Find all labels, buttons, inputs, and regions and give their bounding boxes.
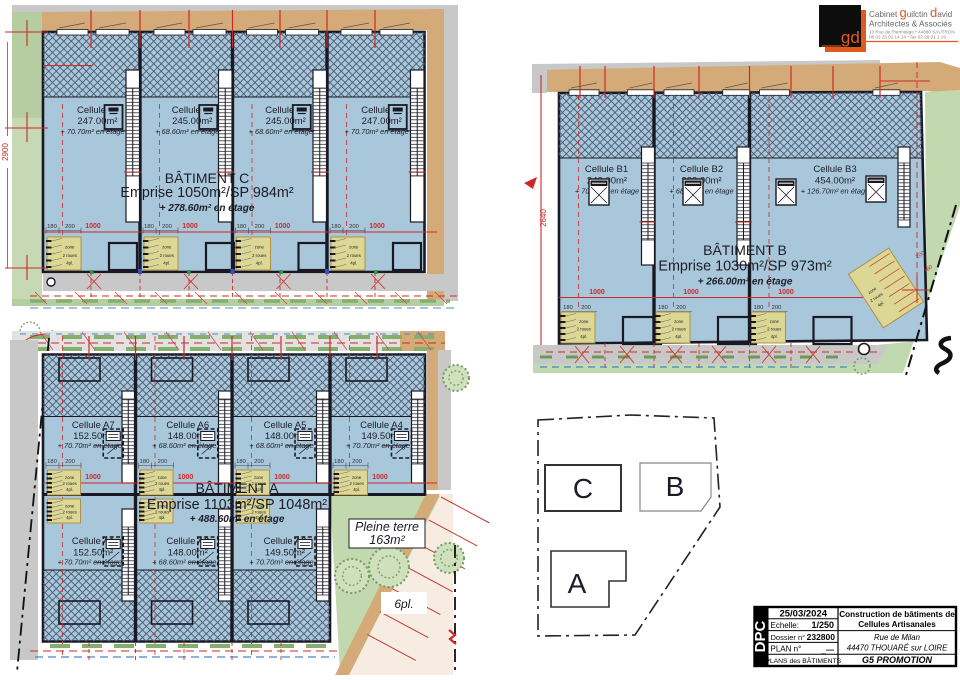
svg-text:zone: zone	[254, 475, 264, 480]
svg-text:4pl.: 4pl.	[350, 261, 357, 266]
svg-text:Rue de Milan: Rue de Milan	[874, 633, 920, 642]
svg-text:200: 200	[158, 459, 168, 465]
svg-text:25/03/2024: 25/03/2024	[779, 608, 827, 619]
svg-text:200: 200	[772, 305, 782, 311]
svg-text:2 roues: 2 roues	[767, 327, 781, 332]
svg-text:+ 70.70m² en étage: + 70.70m² en étage	[60, 127, 124, 136]
svg-text:2 roues: 2 roues	[63, 253, 77, 258]
svg-text:BÂTIMENT C: BÂTIMENT C	[165, 170, 250, 186]
svg-text:4pl.: 4pl.	[163, 261, 170, 266]
svg-text:1000: 1000	[182, 223, 198, 230]
svg-text:247.00m²: 247.00m²	[362, 116, 402, 127]
svg-text:Cellule B3: Cellule B3	[813, 164, 856, 175]
svg-text:44470 THOUARÉ sur LOIRE: 44470 THOUARÉ sur LOIRE	[847, 644, 948, 653]
svg-text:BÂTIMENT A: BÂTIMENT A	[196, 480, 280, 496]
svg-text:Emprise 1103m²/SP 1048m²: Emprise 1103m²/SP 1048m²	[147, 497, 327, 513]
svg-text:Dossier n°: Dossier n°	[771, 633, 806, 642]
svg-text:Cellule: Cellule	[77, 105, 106, 116]
svg-text:Cellule: Cellule	[361, 105, 390, 116]
svg-text:+ 126.70m² en étage: + 126.70m² en étage	[801, 187, 869, 196]
svg-text:Cellule A4: Cellule A4	[360, 420, 403, 431]
svg-text:200: 200	[162, 224, 172, 230]
svg-text:2 roues: 2 roues	[160, 253, 174, 258]
svg-text:Emprise 1050m²/SP 984m²: Emprise 1050m²/SP 984m²	[120, 185, 293, 201]
svg-text:zone: zone	[65, 503, 75, 508]
svg-text:180: 180	[144, 224, 154, 230]
svg-text:200: 200	[349, 224, 359, 230]
svg-text:1000: 1000	[85, 474, 101, 481]
svg-text:2900: 2900	[1, 143, 10, 161]
svg-text:200: 200	[352, 459, 362, 465]
svg-text:2 roues: 2 roues	[672, 327, 686, 332]
svg-text:180: 180	[237, 224, 247, 230]
svg-text:BÂTIMENT B: BÂTIMENT B	[703, 242, 787, 258]
svg-text:4pl.: 4pl.	[353, 487, 360, 492]
svg-text:180: 180	[331, 224, 341, 230]
svg-text:180: 180	[47, 459, 57, 465]
svg-text:2 roues: 2 roues	[577, 327, 591, 332]
svg-text:DPC: DPC	[752, 620, 769, 652]
svg-text:200: 200	[581, 305, 591, 311]
svg-text:+ 68.60m² en étage: + 68.60m² en étage	[249, 127, 313, 136]
svg-text:08 02 25 01 14 14 * fax 02 28: 08 02 25 01 14 14 * fax 02 28 01 1 19	[869, 35, 946, 40]
svg-text:180: 180	[334, 459, 344, 465]
svg-text:Emprise 1030m²/SP 973m²: Emprise 1030m²/SP 973m²	[658, 259, 831, 275]
svg-text:1000: 1000	[369, 223, 385, 230]
svg-text:zone: zone	[770, 319, 780, 324]
svg-text:1/250: 1/250	[811, 620, 834, 630]
svg-text:PLANS des BÂTIMENTS: PLANS des BÂTIMENTS	[765, 656, 841, 665]
svg-text:2 roues: 2 roues	[155, 481, 169, 486]
svg-text:2 roues: 2 roues	[347, 253, 361, 258]
svg-text:1000: 1000	[85, 223, 101, 230]
svg-text:zone: zone	[352, 475, 362, 480]
svg-text:200: 200	[255, 224, 265, 230]
svg-text:Construction de bâtiments de: Construction de bâtiments de	[839, 610, 955, 619]
svg-text:4pl.: 4pl.	[66, 515, 73, 520]
svg-text:__gd: __gd	[821, 28, 860, 47]
svg-text:Cellule A5: Cellule A5	[264, 420, 307, 431]
svg-text:1000: 1000	[683, 289, 699, 296]
svg-text:1000: 1000	[589, 289, 605, 296]
svg-text:180: 180	[236, 459, 246, 465]
svg-text:zone: zone	[349, 245, 359, 250]
svg-text:200: 200	[254, 459, 264, 465]
svg-text:Cellule B1: Cellule B1	[585, 164, 628, 175]
svg-text:4pl.: 4pl.	[675, 334, 682, 339]
svg-text:1000: 1000	[372, 474, 388, 481]
svg-text:200: 200	[65, 459, 75, 465]
svg-text:Cellule B2: Cellule B2	[680, 164, 723, 175]
svg-text:4pl.: 4pl.	[771, 334, 778, 339]
svg-text:245.00m²: 245.00m²	[172, 116, 212, 127]
svg-text:180: 180	[563, 305, 573, 311]
svg-text:Pleine terre: Pleine terre	[355, 520, 419, 534]
svg-text:1000: 1000	[178, 474, 194, 481]
svg-text:Architectes & Associés: Architectes & Associés	[869, 20, 952, 29]
svg-text:4pl.: 4pl.	[66, 261, 73, 266]
svg-text:4pl.: 4pl.	[580, 334, 587, 339]
svg-text:200: 200	[676, 305, 686, 311]
svg-text:+ 266.00m² en étage: + 266.00m² en étage	[698, 277, 793, 288]
svg-text:180: 180	[47, 224, 57, 230]
svg-text:1000: 1000	[275, 223, 291, 230]
svg-text:2 roues: 2 roues	[349, 481, 363, 486]
svg-text:180: 180	[658, 305, 668, 311]
svg-text:2640: 2640	[539, 209, 548, 227]
svg-text:zone: zone	[162, 245, 172, 250]
svg-text:+ 70.70m² en étage: + 70.70m² en étage	[345, 127, 409, 136]
svg-text:2 roues: 2 roues	[62, 509, 76, 514]
svg-text:Echelle:: Echelle:	[771, 621, 799, 630]
svg-text:zone: zone	[674, 319, 684, 324]
svg-text:+ 278.60m² en étage: + 278.60m² en étage	[160, 203, 255, 214]
svg-text:PLAN n°: PLAN n°	[771, 645, 802, 654]
svg-text:1000: 1000	[778, 289, 794, 296]
svg-text:+ 488.60m² en étage: + 488.60m² en étage	[190, 514, 285, 525]
svg-text:180: 180	[754, 305, 764, 311]
svg-text:B: B	[666, 471, 685, 502]
svg-text:2 roues: 2 roues	[252, 253, 266, 258]
svg-text:Cellules Artisanales: Cellules Artisanales	[858, 620, 936, 629]
svg-text:232800: 232800	[807, 632, 836, 642]
svg-text:4pl.: 4pl.	[159, 515, 166, 520]
svg-text:2 roues: 2 roues	[62, 481, 76, 486]
svg-text:zone: zone	[65, 475, 75, 480]
svg-text:200: 200	[65, 224, 75, 230]
svg-text:Cellule: Cellule	[172, 105, 201, 116]
svg-text:4pl.: 4pl.	[159, 487, 166, 492]
svg-text:180: 180	[140, 459, 150, 465]
svg-text:Cellule A7: Cellule A7	[72, 420, 115, 431]
svg-text:247.00m²: 247.00m²	[77, 116, 117, 127]
svg-text:Cellule A6: Cellule A6	[166, 420, 209, 431]
svg-text:163m²: 163m²	[369, 533, 405, 547]
svg-text:zone: zone	[65, 245, 75, 250]
svg-text:A: A	[568, 568, 587, 599]
svg-text:245.00m²: 245.00m²	[266, 116, 306, 127]
svg-text:454.00m²: 454.00m²	[815, 176, 855, 187]
svg-text:zone: zone	[579, 319, 589, 324]
svg-text:4pl.: 4pl.	[256, 261, 263, 266]
svg-text:4pl.: 4pl.	[66, 487, 73, 492]
svg-text:+ 68.60m² en étage: + 68.60m² en étage	[155, 127, 219, 136]
svg-text:C: C	[573, 473, 593, 504]
svg-text:_—: _—	[821, 646, 834, 655]
svg-text:Cellule: Cellule	[265, 105, 294, 116]
svg-text:zone: zone	[157, 475, 167, 480]
svg-text:6pl.: 6pl.	[394, 597, 413, 611]
svg-text:G5 PROMOTION: G5 PROMOTION	[862, 655, 933, 665]
svg-text:zone: zone	[255, 245, 265, 250]
